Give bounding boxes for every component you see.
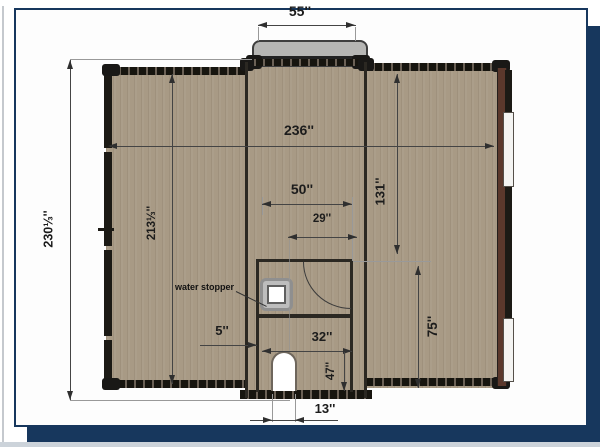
dim47-label: 47'': [325, 362, 337, 380]
right-wing-bottom-wall: [366, 378, 496, 386]
dim32-arrow-left: [262, 348, 271, 354]
dim213-label: 213⅓'': [146, 206, 158, 240]
dim213-arrow-top: [169, 74, 175, 83]
center-top-wall: [247, 59, 367, 66]
dim55-arrow-right: [346, 22, 355, 28]
dim29-arrow-left: [288, 234, 297, 240]
dim236-label: 236'': [268, 122, 330, 138]
shower-drain: [267, 285, 286, 304]
center-left-partition-wall: [245, 62, 248, 398]
left-exterior-wall-seg2: [104, 152, 112, 246]
dim230-labelbox: 230⅓'': [19, 201, 79, 257]
dim50-ext-right: [352, 197, 353, 261]
dim55-ext-left: [258, 27, 259, 41]
dim50-arrow-right: [343, 201, 352, 207]
right-outer-seg2: [505, 185, 512, 318]
dim236-arrow-right: [485, 143, 494, 149]
left-wing-bottom-wall: [118, 380, 247, 388]
dim29-label: 29'': [301, 213, 343, 225]
dim55-label: 55'': [276, 3, 324, 19]
corner-clamp-bottom-left: [102, 378, 120, 390]
dim131-labelbox: 131'': [352, 163, 408, 219]
left-exterior-wall-seg1: [104, 70, 112, 148]
dim5-arrow-right: [248, 342, 257, 348]
dim13-arrow-left: [263, 417, 272, 423]
dim131-arrow-top: [394, 74, 400, 83]
dim213-arrow-bottom: [169, 375, 175, 384]
corner-clamp-top-left: [102, 64, 120, 76]
dim230-arrow-top: [67, 60, 73, 69]
dim50-arrow-left: [262, 201, 271, 207]
dim213-labelbox: 213⅓'': [124, 195, 180, 251]
dim230-label: 230⅓'': [42, 210, 56, 247]
dim29-ext-down: [289, 240, 290, 352]
dim236-arrow-left: [108, 143, 117, 149]
dim236-line: [110, 146, 494, 147]
dim55-arrow-left: [258, 22, 267, 28]
dim5-label: 5'': [203, 323, 241, 338]
water-stopper-label: water stopper: [175, 282, 239, 294]
screenshot-root: water stopper 55'' 230⅓'' 213⅓'' 236'' 1…: [0, 0, 600, 447]
dim32-label: 32'': [299, 329, 345, 344]
right-wall-window-lower: [503, 318, 514, 382]
dim131-arrow-bottom: [394, 245, 400, 254]
dim55-ext-right: [355, 27, 356, 41]
left-wall-handle: [98, 228, 114, 231]
dim75-label: 75'': [426, 315, 441, 336]
bathroom-left-wall: [256, 260, 259, 392]
dim230-ext-top: [70, 59, 252, 60]
dim13-label: 13'': [303, 401, 347, 416]
dim13-ext-left: [272, 394, 273, 422]
dim29-line: [288, 237, 357, 238]
right-outer-seg1: [505, 70, 512, 112]
dim230-ext-bottom: [70, 400, 290, 401]
dim230-arrow-bottom: [67, 391, 73, 400]
page-bottom-strip: [0, 442, 600, 447]
dim75-arrow-bottom: [415, 379, 421, 388]
dim75-labelbox: 75'': [405, 298, 461, 354]
page-left-edge: [2, 6, 4, 442]
dim13-arrow-right: [295, 417, 304, 423]
dim50-line: [262, 204, 352, 205]
dim75-arrow-top: [415, 266, 421, 275]
right-wing-top-wall: [366, 63, 500, 71]
bathroom-middle-wall: [256, 314, 353, 318]
dim55-line: [258, 25, 356, 26]
dim131-label: 131'': [373, 177, 388, 205]
left-wing-top-wall: [112, 67, 247, 75]
left-exterior-wall-seg3: [104, 250, 112, 336]
dim29-arrow-right: [348, 234, 357, 240]
dim131-ext-bottom: [353, 261, 431, 262]
dim50-label: 50'': [279, 181, 325, 197]
right-wall-window-upper: [503, 112, 514, 187]
arched-doorway: [271, 351, 297, 391]
center-right-partition-wall: [364, 62, 367, 398]
dim47-labelbox: 47'': [307, 347, 355, 395]
